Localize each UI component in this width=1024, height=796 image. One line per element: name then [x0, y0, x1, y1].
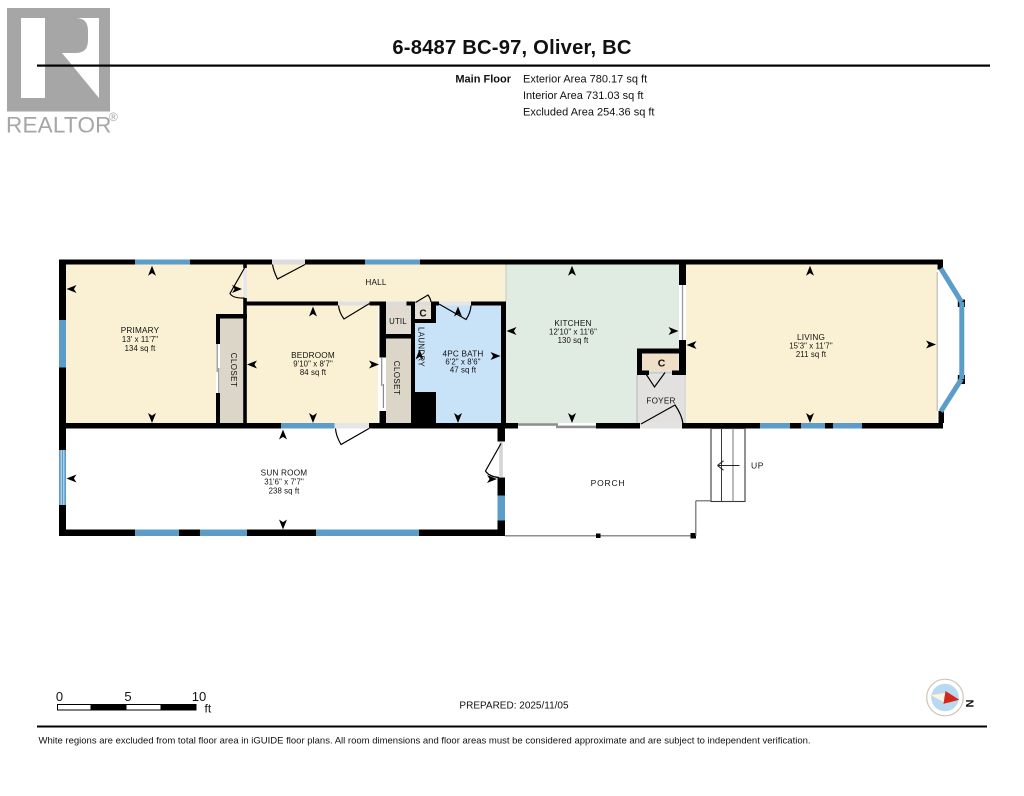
svg-text:134 sq ft: 134 sq ft: [125, 344, 157, 353]
svg-text:84 sq ft: 84 sq ft: [300, 368, 327, 377]
svg-text:31'6" x 7'7": 31'6" x 7'7": [264, 478, 304, 487]
svg-text:UTIL: UTIL: [389, 317, 407, 326]
svg-text:C: C: [658, 358, 666, 370]
svg-text:REALTOR: REALTOR: [6, 113, 112, 138]
svg-text:238 sq ft: 238 sq ft: [269, 487, 301, 496]
svg-text:CLOSET: CLOSET: [229, 353, 238, 387]
svg-text:211 sq ft: 211 sq ft: [796, 350, 827, 359]
svg-text:PREPARED: 2025/11/05: PREPARED: 2025/11/05: [459, 701, 569, 712]
svg-text:5: 5: [124, 689, 131, 704]
svg-text:N: N: [963, 700, 975, 708]
svg-text:PORCH: PORCH: [591, 478, 626, 488]
svg-text:Interior Area 731.03 sq ft: Interior Area 731.03 sq ft: [523, 90, 643, 102]
svg-text:0: 0: [56, 689, 63, 704]
svg-text:13' x 11'7": 13' x 11'7": [122, 335, 158, 344]
svg-text:LAUNDRY: LAUNDRY: [417, 327, 426, 367]
svg-text:HALL: HALL: [365, 278, 387, 287]
svg-text:ft: ft: [205, 702, 212, 716]
svg-text:CLOSET: CLOSET: [392, 361, 401, 395]
svg-text:6-8487 BC-97, Oliver, BC: 6-8487 BC-97, Oliver, BC: [392, 37, 632, 59]
svg-text:C: C: [419, 309, 426, 320]
svg-text:FOYER: FOYER: [646, 397, 675, 406]
svg-text:®: ®: [109, 110, 118, 124]
svg-text:SUN ROOM: SUN ROOM: [261, 469, 308, 478]
svg-text:Exterior Area 780.17 sq ft: Exterior Area 780.17 sq ft: [523, 74, 647, 86]
svg-text:Main Floor: Main Floor: [455, 74, 511, 86]
svg-text:47 sq ft: 47 sq ft: [450, 366, 477, 375]
svg-text:UP: UP: [751, 461, 764, 471]
svg-text:130 sq ft: 130 sq ft: [558, 336, 590, 345]
svg-text:PRIMARY: PRIMARY: [121, 326, 160, 335]
svg-text:White regions are excluded fro: White regions are excluded from total fl…: [39, 736, 811, 747]
svg-text:Excluded Area 254.36 sq ft: Excluded Area 254.36 sq ft: [523, 107, 654, 119]
